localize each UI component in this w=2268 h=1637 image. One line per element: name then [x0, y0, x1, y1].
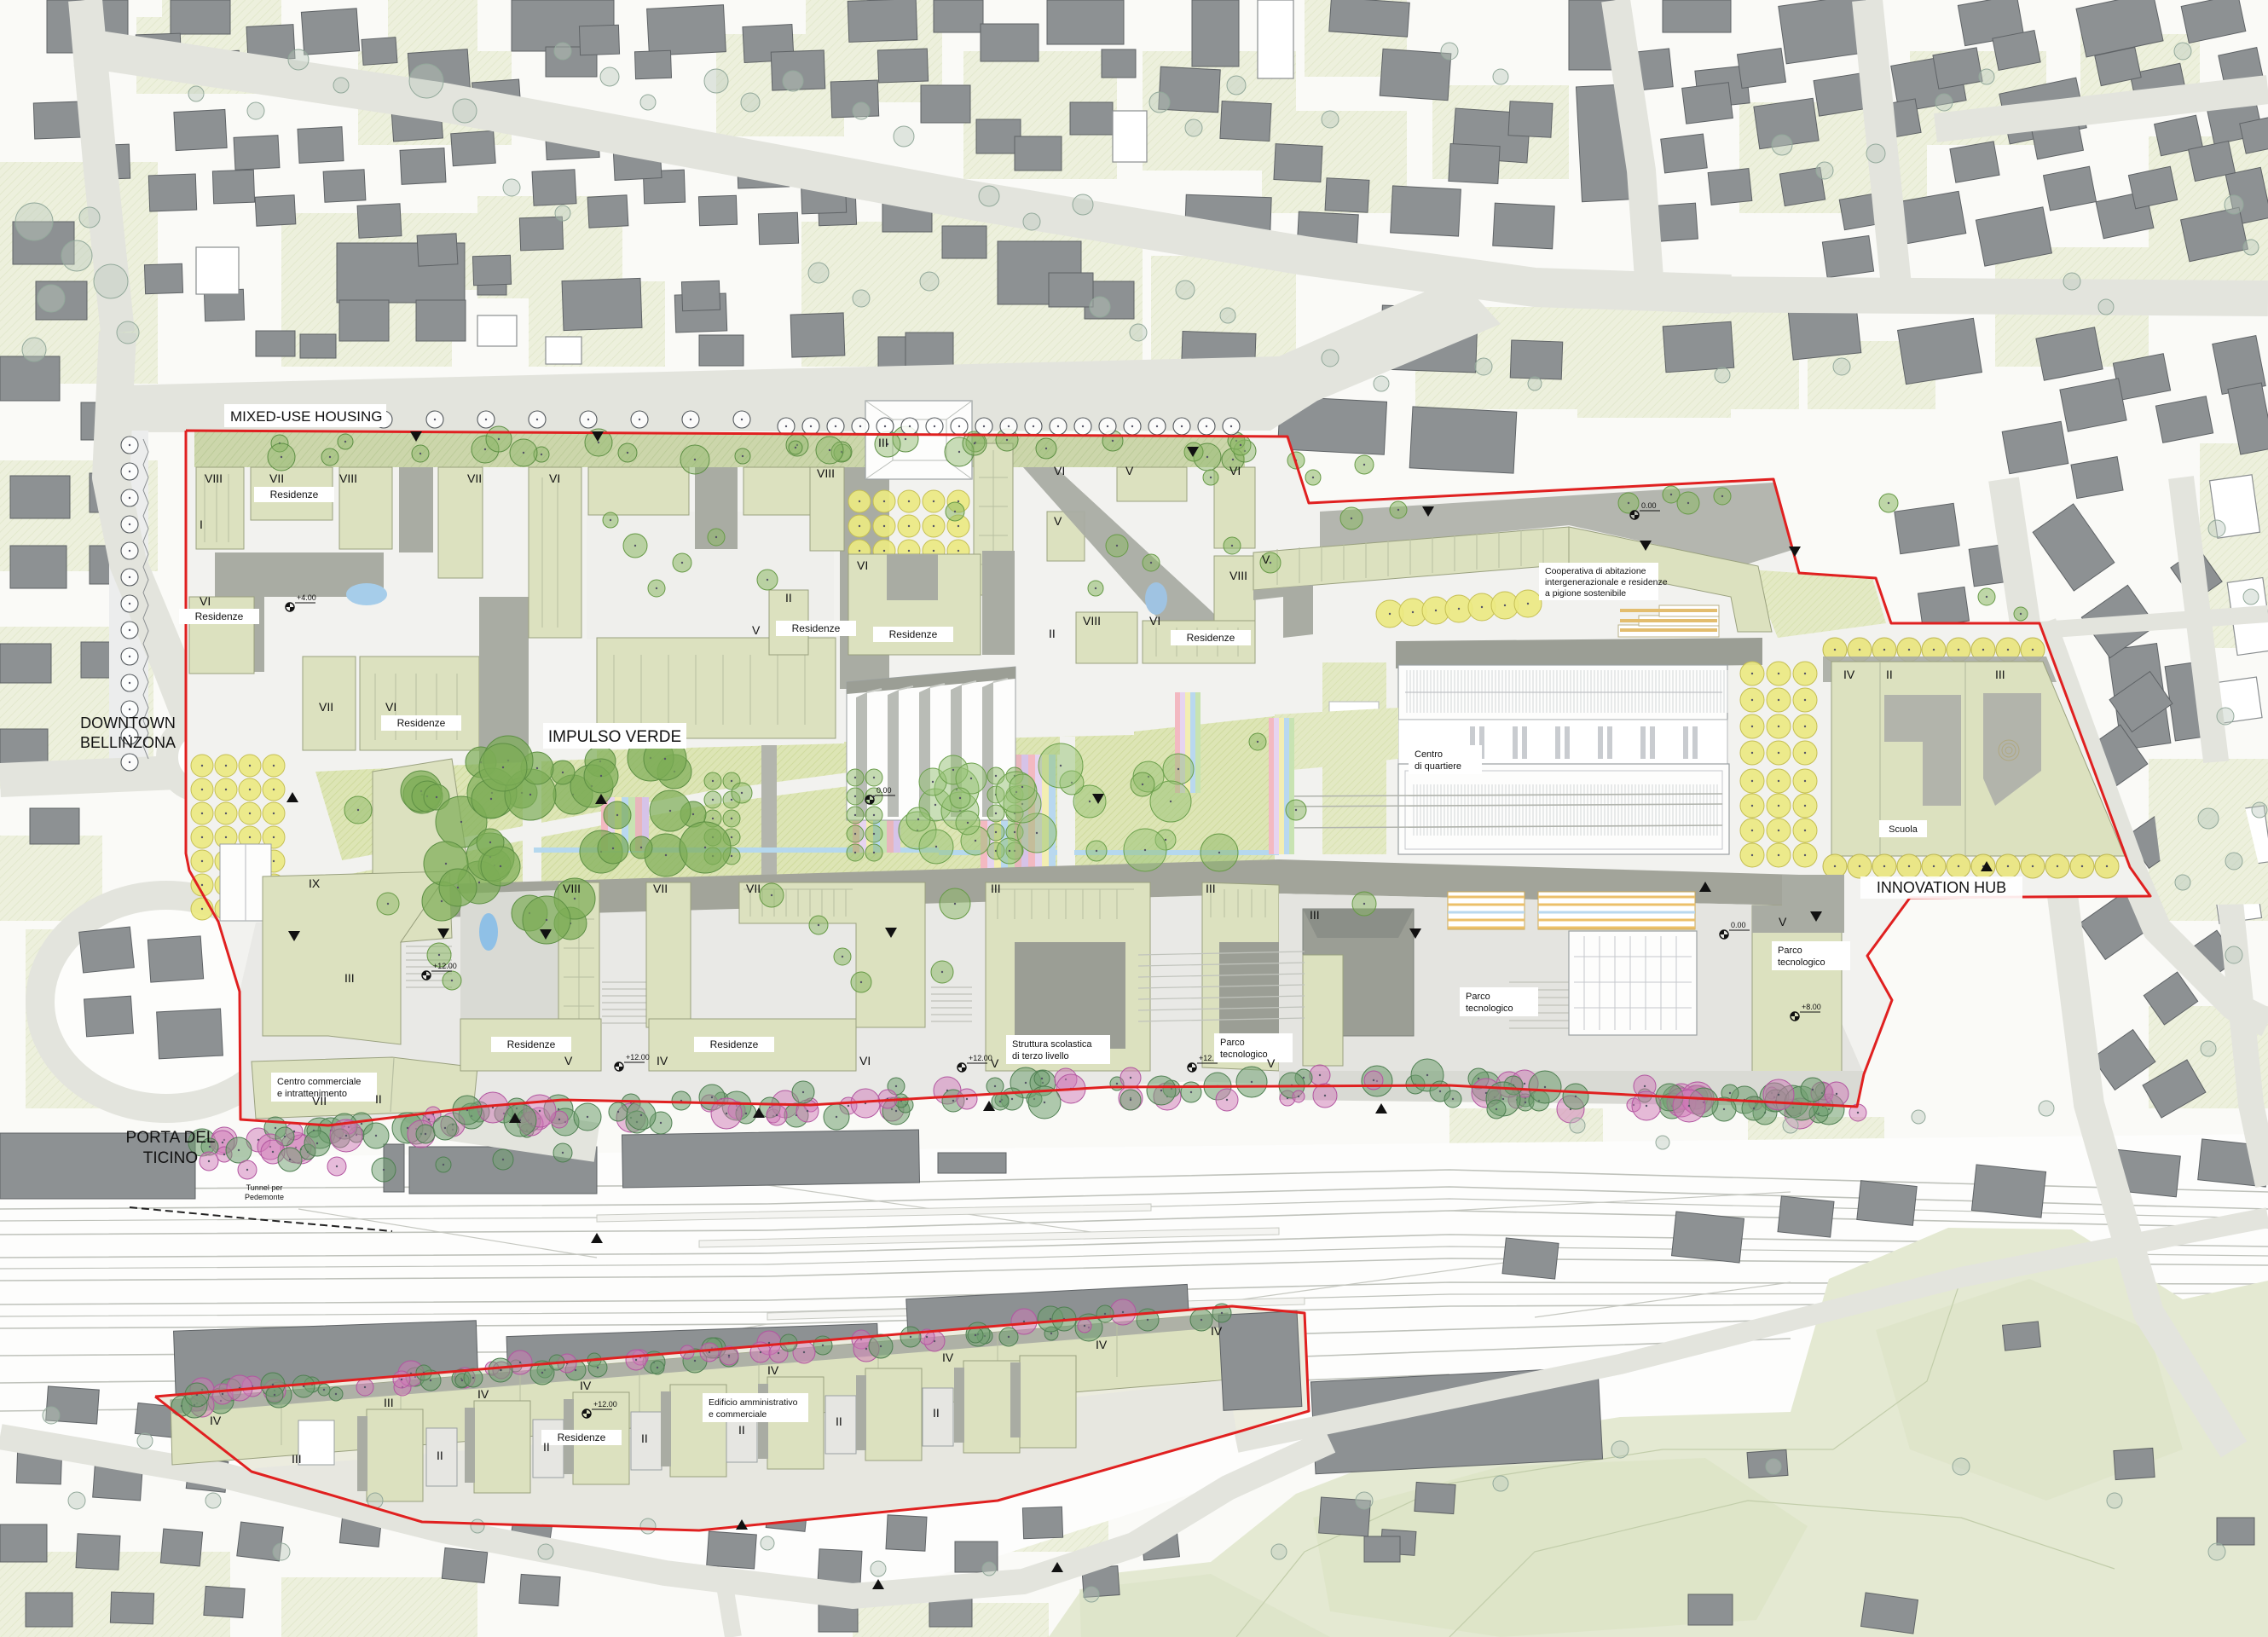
- svg-text:VIII: VIII: [563, 882, 581, 895]
- svg-text:Residenze: Residenze: [397, 717, 446, 729]
- svg-text:IMPULSO VERDE: IMPULSO VERDE: [548, 728, 681, 746]
- svg-text:e commerciale: e commerciale: [709, 1409, 767, 1420]
- svg-text:VIII: VIII: [339, 471, 357, 485]
- svg-text:INNOVATION HUB: INNOVATION HUB: [1877, 879, 2006, 896]
- svg-text:VI: VI: [859, 1054, 871, 1067]
- svg-text:I: I: [200, 518, 203, 531]
- svg-text:VII: VII: [467, 471, 482, 485]
- svg-text:PORTA DEL: PORTA DEL: [126, 1129, 216, 1147]
- svg-text:tecnologico: tecnologico: [1220, 1050, 1268, 1060]
- svg-text:IV: IV: [1843, 668, 1855, 681]
- svg-text:+8.00: +8.00: [1802, 1003, 1821, 1011]
- svg-text:Edificio amministrativo: Edificio amministrativo: [709, 1397, 798, 1408]
- svg-text:V: V: [564, 1054, 573, 1067]
- svg-text:+12.00: +12.00: [433, 962, 457, 970]
- svg-text:VI: VI: [1149, 614, 1160, 628]
- svg-text:Struttura scolastica: Struttura scolastica: [1012, 1039, 1092, 1050]
- svg-text:Cooperativa di abitazione: Cooperativa di abitazione: [1545, 566, 1646, 576]
- svg-text:+12.00: +12.00: [593, 1400, 617, 1409]
- svg-text:IV: IV: [580, 1379, 592, 1392]
- svg-text:IV: IV: [210, 1414, 222, 1427]
- svg-text:VII: VII: [312, 1094, 327, 1108]
- svg-text:III: III: [292, 1452, 302, 1466]
- svg-text:VI: VI: [200, 594, 211, 608]
- svg-text:Residenze: Residenze: [792, 622, 841, 634]
- svg-text:II: II: [375, 1092, 382, 1106]
- svg-text:II: II: [641, 1432, 648, 1445]
- svg-text:Scuola: Scuola: [1889, 824, 1918, 835]
- svg-text:III: III: [991, 882, 1001, 895]
- svg-text:IV: IV: [477, 1387, 489, 1401]
- svg-text:VIII: VIII: [817, 466, 835, 480]
- svg-text:III: III: [1206, 882, 1216, 895]
- svg-text:Residenze: Residenze: [507, 1038, 556, 1050]
- svg-text:VI: VI: [385, 700, 396, 714]
- svg-text:tecnologico: tecnologico: [1778, 957, 1825, 968]
- svg-text:III: III: [344, 971, 355, 985]
- svg-text:VI: VI: [857, 558, 868, 572]
- svg-text:III: III: [1995, 668, 2005, 681]
- svg-text:VII: VII: [653, 882, 668, 895]
- svg-text:0.00: 0.00: [1731, 921, 1746, 929]
- svg-text:V: V: [1267, 1056, 1276, 1070]
- svg-text:IV: IV: [767, 1363, 779, 1377]
- svg-text:V: V: [991, 1056, 999, 1070]
- svg-text:II: II: [785, 591, 792, 604]
- svg-text:Parco: Parco: [1220, 1038, 1245, 1048]
- svg-text:tecnologico: tecnologico: [1466, 1004, 1513, 1014]
- svg-text:II: II: [437, 1449, 443, 1462]
- svg-text:Pedemonte: Pedemonte: [245, 1193, 284, 1201]
- svg-text:V: V: [1125, 464, 1134, 477]
- svg-text:VIII: VIII: [205, 471, 223, 485]
- svg-text:V: V: [1054, 514, 1062, 528]
- svg-text:V: V: [1779, 915, 1787, 928]
- svg-text:II: II: [1886, 668, 1893, 681]
- svg-text:a pigione sostenibile: a pigione sostenibile: [1545, 588, 1626, 599]
- svg-text:di quartiere: di quartiere: [1415, 761, 1461, 772]
- svg-text:di terzo livello: di terzo livello: [1012, 1051, 1069, 1061]
- svg-text:Residenze: Residenze: [558, 1432, 606, 1443]
- svg-text:II: II: [738, 1423, 745, 1437]
- svg-text:V: V: [752, 623, 761, 637]
- svg-text:III: III: [384, 1396, 394, 1409]
- svg-text:IX: IX: [309, 876, 321, 890]
- svg-text:Residenze: Residenze: [195, 610, 244, 622]
- svg-text:III: III: [1310, 908, 1320, 922]
- svg-text:BELLINZONA: BELLINZONA: [80, 734, 176, 751]
- svg-text:0.00: 0.00: [1641, 501, 1657, 510]
- svg-text:MIXED-USE HOUSING: MIXED-USE HOUSING: [230, 408, 383, 425]
- svg-text:VI: VI: [549, 471, 560, 485]
- svg-text:IV: IV: [942, 1351, 954, 1364]
- svg-text:Centro: Centro: [1415, 749, 1443, 760]
- svg-text:IV: IV: [657, 1054, 668, 1067]
- svg-text:VII: VII: [269, 471, 284, 485]
- svg-text:+12.00: +12.00: [626, 1053, 650, 1061]
- svg-text:Residenze: Residenze: [1187, 632, 1235, 644]
- svg-text:VII: VII: [746, 882, 761, 895]
- svg-text:II: II: [1049, 627, 1056, 640]
- svg-text:II: II: [543, 1440, 550, 1454]
- svg-text:II: II: [836, 1414, 842, 1428]
- svg-text:+12.00: +12.00: [969, 1054, 992, 1062]
- svg-text:Parco: Parco: [1466, 992, 1490, 1002]
- svg-text:intergenerazionale e residenze: intergenerazionale e residenze: [1545, 577, 1668, 587]
- svg-text:II: II: [933, 1406, 940, 1420]
- svg-text:DOWNTOWN: DOWNTOWN: [80, 714, 176, 732]
- svg-text:VIII: VIII: [1229, 569, 1247, 582]
- svg-text:III: III: [878, 436, 888, 449]
- svg-text:Parco: Parco: [1778, 946, 1802, 956]
- svg-text:Residenze: Residenze: [710, 1038, 759, 1050]
- svg-text:Residenze: Residenze: [270, 489, 319, 500]
- svg-text:IV: IV: [1211, 1324, 1223, 1338]
- svg-text:VIII: VIII: [1083, 614, 1101, 628]
- svg-text:Residenze: Residenze: [889, 628, 938, 640]
- svg-text:IV: IV: [1096, 1338, 1108, 1351]
- svg-text:Centro commerciale: Centro commerciale: [277, 1077, 361, 1087]
- svg-text:VI: VI: [1054, 464, 1065, 477]
- svg-text:+4.00: +4.00: [297, 593, 316, 602]
- svg-text:Tunnel per: Tunnel per: [246, 1183, 283, 1192]
- svg-text:VII: VII: [319, 700, 333, 714]
- svg-text:V: V: [1262, 552, 1270, 566]
- svg-text:TICINO: TICINO: [143, 1149, 198, 1167]
- svg-text:0.00: 0.00: [877, 786, 892, 795]
- svg-text:VI: VI: [1229, 464, 1241, 477]
